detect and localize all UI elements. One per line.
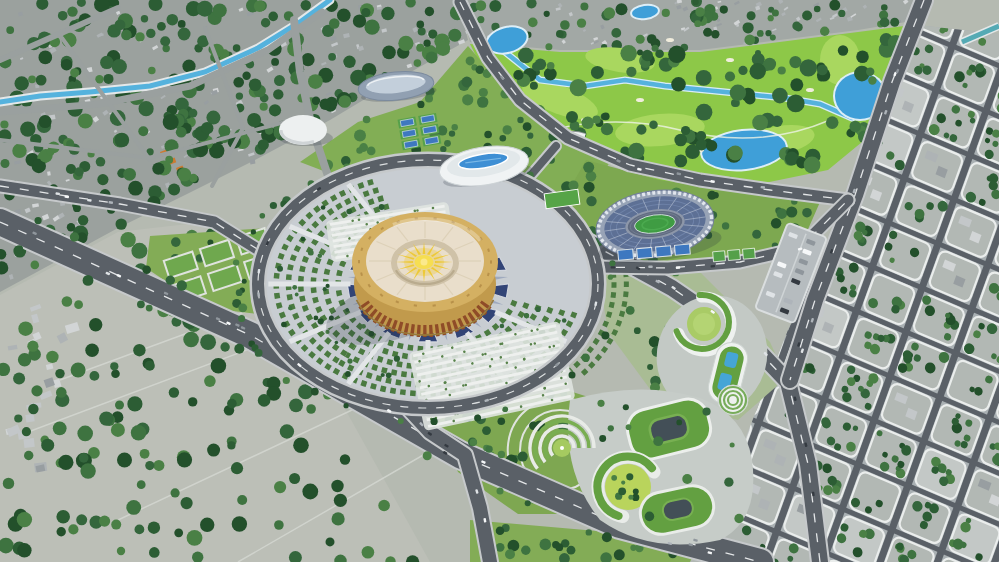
masterplan-aerial-rendering (0, 0, 999, 562)
scene-svg (0, 0, 999, 562)
